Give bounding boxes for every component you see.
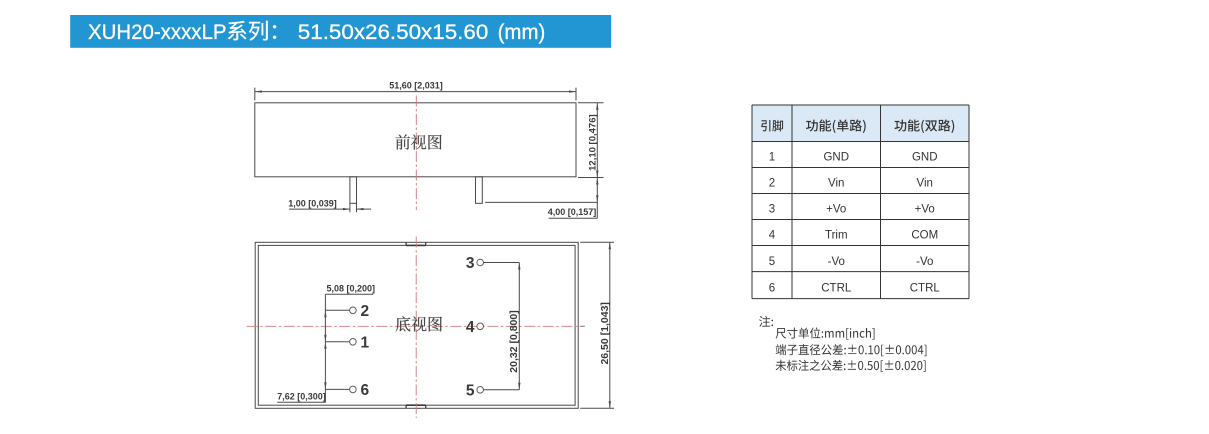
svg-text:3: 3: [466, 255, 475, 272]
svg-text:1: 1: [361, 335, 370, 352]
svg-text:1: 1: [769, 152, 775, 164]
svg-text:4: 4: [466, 319, 475, 336]
svg-text:20,32 [0,800]: 20,32 [0,800]: [508, 310, 520, 372]
svg-text:2: 2: [769, 178, 775, 190]
svg-text:51.50x26.50x15.60: 51.50x26.50x15.60: [298, 20, 489, 44]
svg-text:12,10 [0,476]: 12,10 [0,476]: [588, 114, 599, 171]
svg-text:2: 2: [361, 303, 370, 320]
svg-text:6: 6: [361, 382, 370, 399]
svg-text:1,00 [0,039]: 1,00 [0,039]: [288, 199, 337, 209]
svg-text:+Vo: +Vo: [826, 204, 846, 216]
svg-text:51,60 [2,031]: 51,60 [2,031]: [389, 81, 443, 91]
svg-text:+Vo: +Vo: [915, 204, 935, 216]
svg-text:5: 5: [769, 256, 775, 268]
svg-text:CTRL: CTRL: [821, 282, 852, 294]
svg-text:CTRL: CTRL: [910, 282, 941, 294]
svg-text:COM: COM: [911, 230, 938, 242]
svg-text:6: 6: [769, 282, 775, 294]
svg-text:-Vo: -Vo: [828, 256, 845, 268]
svg-text:5: 5: [466, 383, 475, 400]
svg-text:Vin: Vin: [828, 178, 844, 190]
svg-text:-Vo: -Vo: [916, 256, 933, 268]
svg-text:Vin: Vin: [917, 178, 933, 190]
svg-text:GND: GND: [823, 152, 849, 164]
svg-text:4,00 [0,157]: 4,00 [0,157]: [548, 207, 597, 217]
svg-text:5,08 [0,200]: 5,08 [0,200]: [327, 284, 376, 294]
svg-text:26,50 [1,043]: 26,50 [1,043]: [599, 302, 611, 364]
svg-text:3: 3: [769, 204, 775, 216]
svg-text:Trim: Trim: [825, 230, 848, 242]
svg-text:GND: GND: [912, 152, 938, 164]
svg-text:(mm): (mm): [498, 20, 546, 44]
svg-text:7,62 [0,300]: 7,62 [0,300]: [277, 391, 326, 401]
svg-text:4: 4: [769, 230, 776, 242]
svg-text:XUH20-xxxxLP: XUH20-xxxxLP: [88, 20, 227, 44]
